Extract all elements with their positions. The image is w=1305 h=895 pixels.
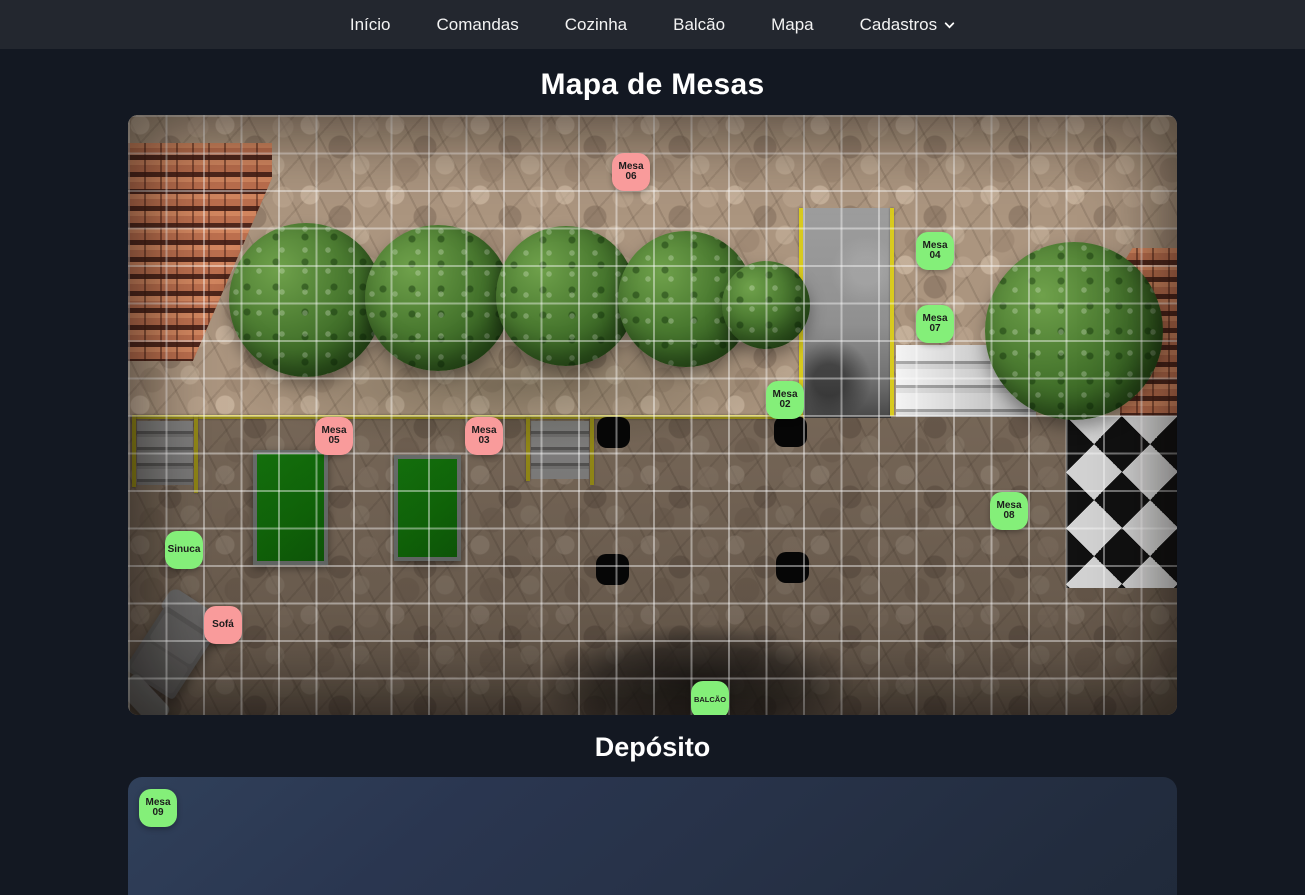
table-marker-mesa-05[interactable]: Mesa 05: [315, 417, 353, 455]
nav-dropdown-label: Cadastros: [860, 15, 937, 35]
top-navbar: Início Comandas Cozinha Balcão Mapa Cada…: [0, 0, 1305, 49]
table-marker-mesa-07[interactable]: Mesa 07: [916, 305, 954, 343]
tree: [722, 261, 810, 349]
chevron-down-icon: [944, 16, 955, 36]
tree: [985, 242, 1163, 420]
table-marker-mesa-04[interactable]: Mesa 04: [916, 232, 954, 270]
table-marker-mesa-02[interactable]: Mesa 02: [766, 381, 804, 419]
patio-table: [776, 552, 809, 583]
nav-item-balcao[interactable]: Balcão: [673, 15, 725, 35]
table-marker-balcão[interactable]: BALCÃO: [691, 681, 729, 715]
table-map: Mesa 06Mesa 04Mesa 07Mesa 02Mesa 05Mesa …: [128, 115, 1177, 715]
deposito-panel: Mesa 09: [128, 777, 1177, 895]
tree: [496, 226, 636, 366]
table-marker-sofá[interactable]: Sofá: [204, 606, 242, 644]
shadow-overlay: [128, 416, 1177, 715]
deposito-title: Depósito: [0, 732, 1305, 763]
nav-item-mapa[interactable]: Mapa: [771, 15, 814, 35]
table-marker-mesa-03[interactable]: Mesa 03: [465, 417, 503, 455]
concrete-path: [803, 208, 891, 418]
nav-item-cozinha[interactable]: Cozinha: [565, 15, 627, 35]
nav-dropdown-cadastros[interactable]: Cadastros: [860, 14, 955, 36]
tree: [229, 223, 383, 377]
nav-item-comandas[interactable]: Comandas: [437, 15, 519, 35]
table-marker-mesa-08[interactable]: Mesa 08: [990, 492, 1028, 530]
patio-table: [774, 416, 807, 447]
patio-table: [596, 554, 629, 585]
page-title: Mapa de Mesas: [0, 68, 1305, 102]
table-marker-sinuca[interactable]: Sinuca: [165, 531, 203, 569]
table-marker-mesa-09[interactable]: Mesa 09: [139, 789, 177, 827]
nav-item-inicio[interactable]: Início: [350, 15, 391, 35]
patio-table: [597, 417, 630, 448]
tree: [365, 225, 511, 371]
checkered-floor: [1066, 416, 1177, 588]
table-marker-mesa-06[interactable]: Mesa 06: [612, 153, 650, 191]
yellow-line: [890, 208, 894, 416]
